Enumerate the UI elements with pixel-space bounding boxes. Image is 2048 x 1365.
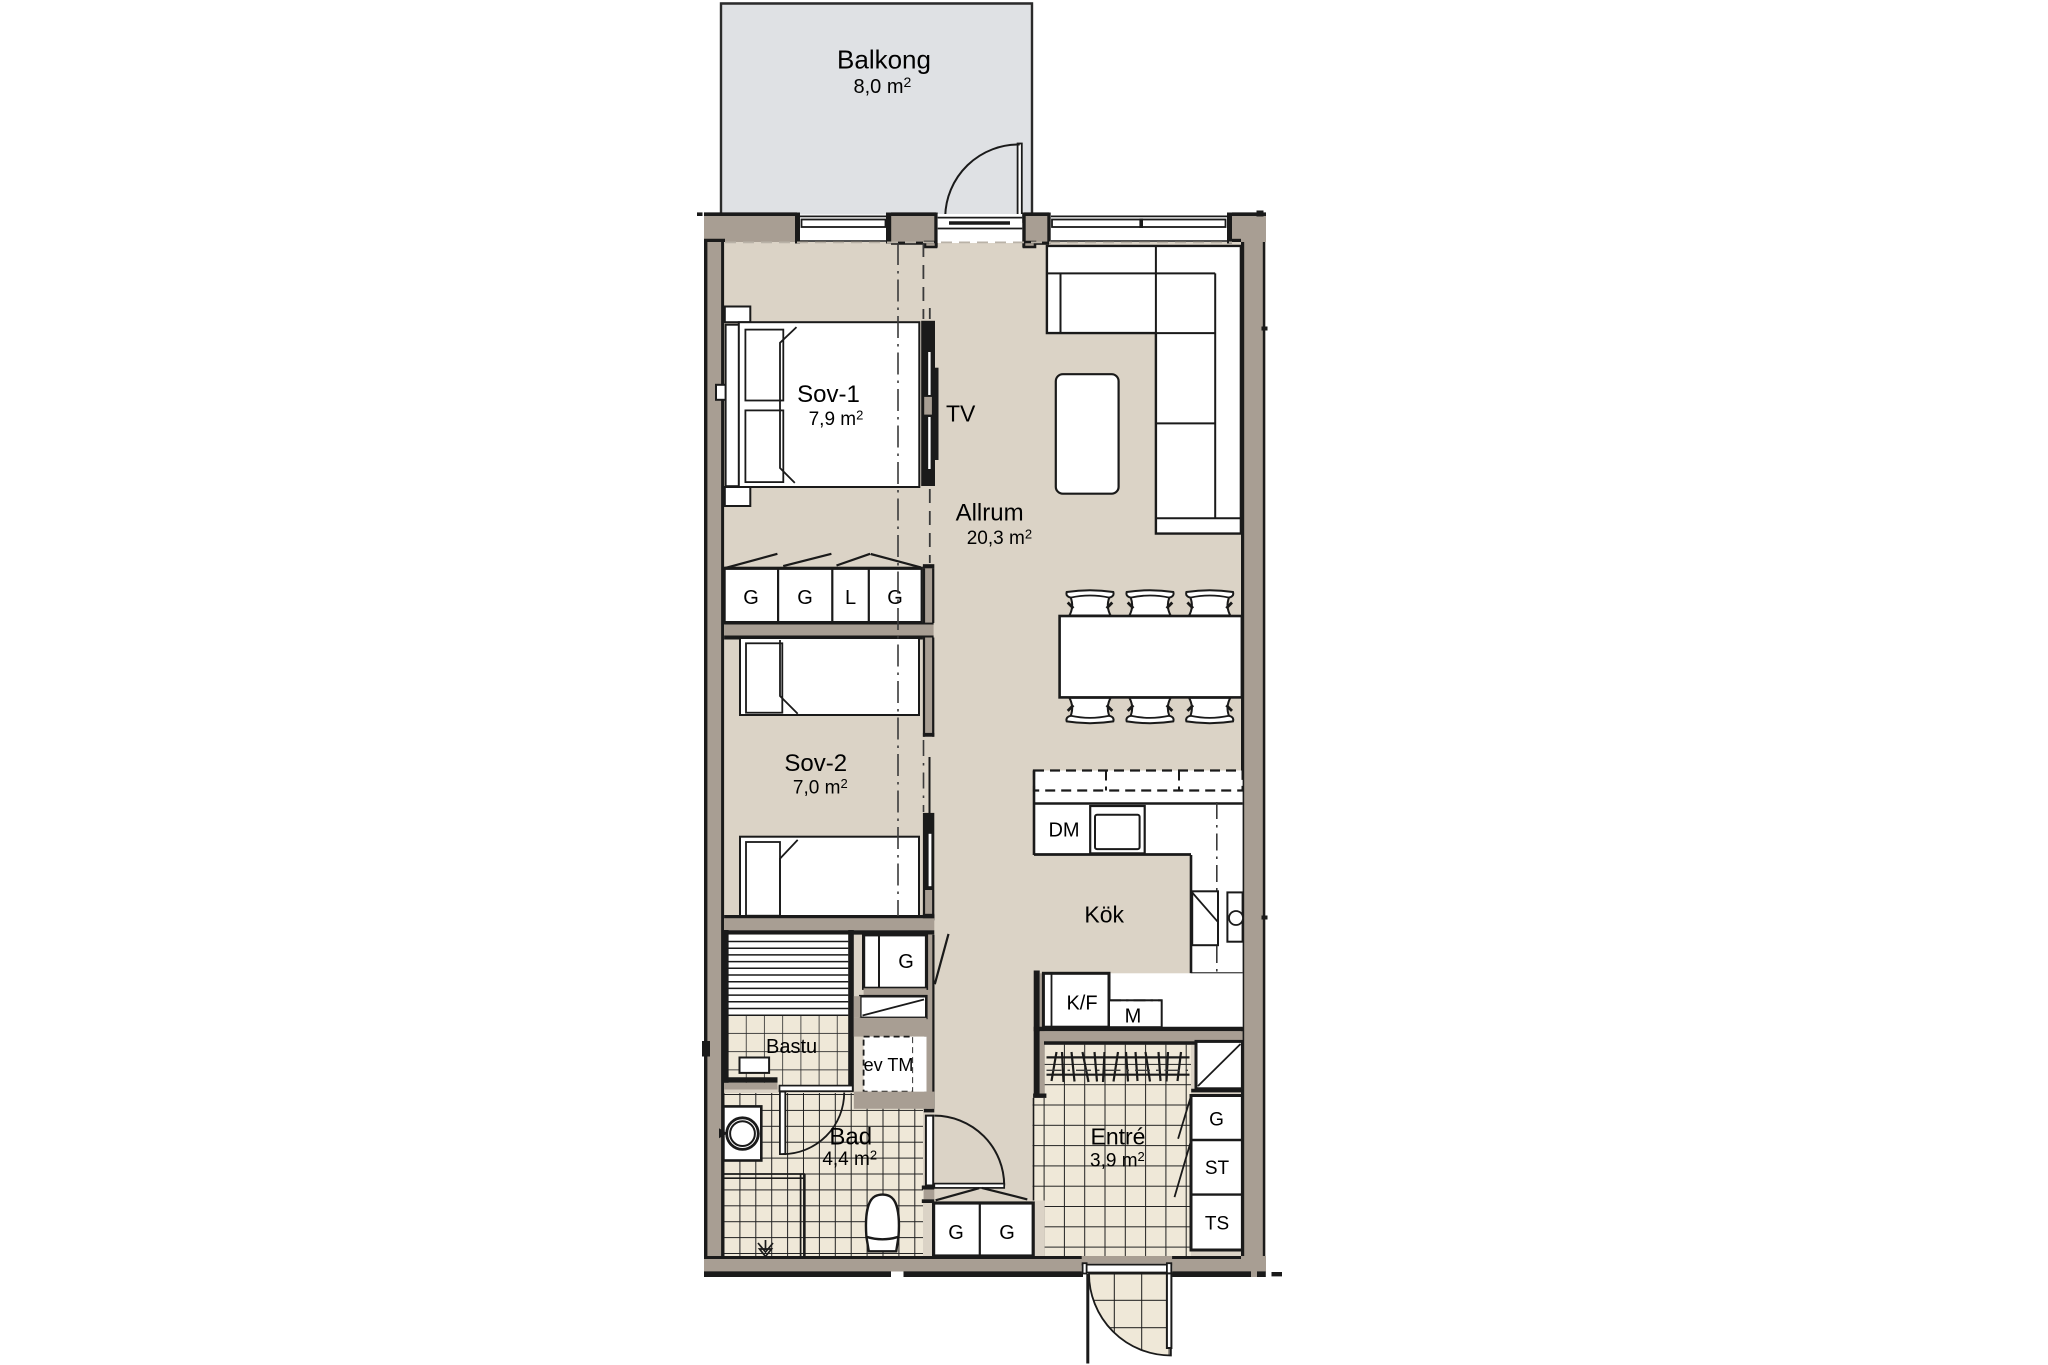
svg-text:G: G [797, 587, 813, 609]
svg-text:8,0 m2: 8,0 m2 [853, 74, 911, 98]
svg-text:L: L [845, 587, 856, 609]
svg-text:G: G [898, 951, 914, 973]
svg-text:G: G [887, 587, 903, 609]
svg-text:Balkong: Balkong [837, 45, 931, 75]
svg-text:Sov-1: Sov-1 [797, 381, 860, 408]
svg-text:TV: TV [946, 401, 976, 427]
svg-text:7,0 m2: 7,0 m2 [793, 776, 848, 799]
svg-text:4,4 m2: 4,4 m2 [822, 1148, 877, 1171]
svg-text:G: G [948, 1222, 964, 1244]
svg-text:G: G [1209, 1110, 1224, 1131]
svg-text:3,9 m2: 3,9 m2 [1090, 1149, 1145, 1172]
svg-text:Entré: Entré [1091, 1123, 1146, 1149]
svg-text:Bad: Bad [829, 1123, 872, 1150]
svg-text:Allrum: Allrum [956, 500, 1024, 527]
svg-text:K/F: K/F [1066, 993, 1097, 1015]
svg-text:ev TM: ev TM [864, 1055, 914, 1075]
svg-text:TS: TS [1205, 1214, 1229, 1235]
svg-text:DM: DM [1048, 820, 1079, 842]
svg-text:20,3 m2: 20,3 m2 [967, 527, 1032, 550]
svg-text:M: M [1125, 1006, 1142, 1028]
svg-text:7,9 m2: 7,9 m2 [809, 407, 864, 430]
svg-text:G: G [743, 587, 759, 609]
svg-text:G: G [999, 1222, 1015, 1244]
svg-text:ST: ST [1205, 1158, 1230, 1179]
svg-text:Kök: Kök [1084, 901, 1124, 927]
svg-text:Sov-2: Sov-2 [784, 750, 847, 777]
svg-text:Bastu: Bastu [766, 1036, 817, 1058]
